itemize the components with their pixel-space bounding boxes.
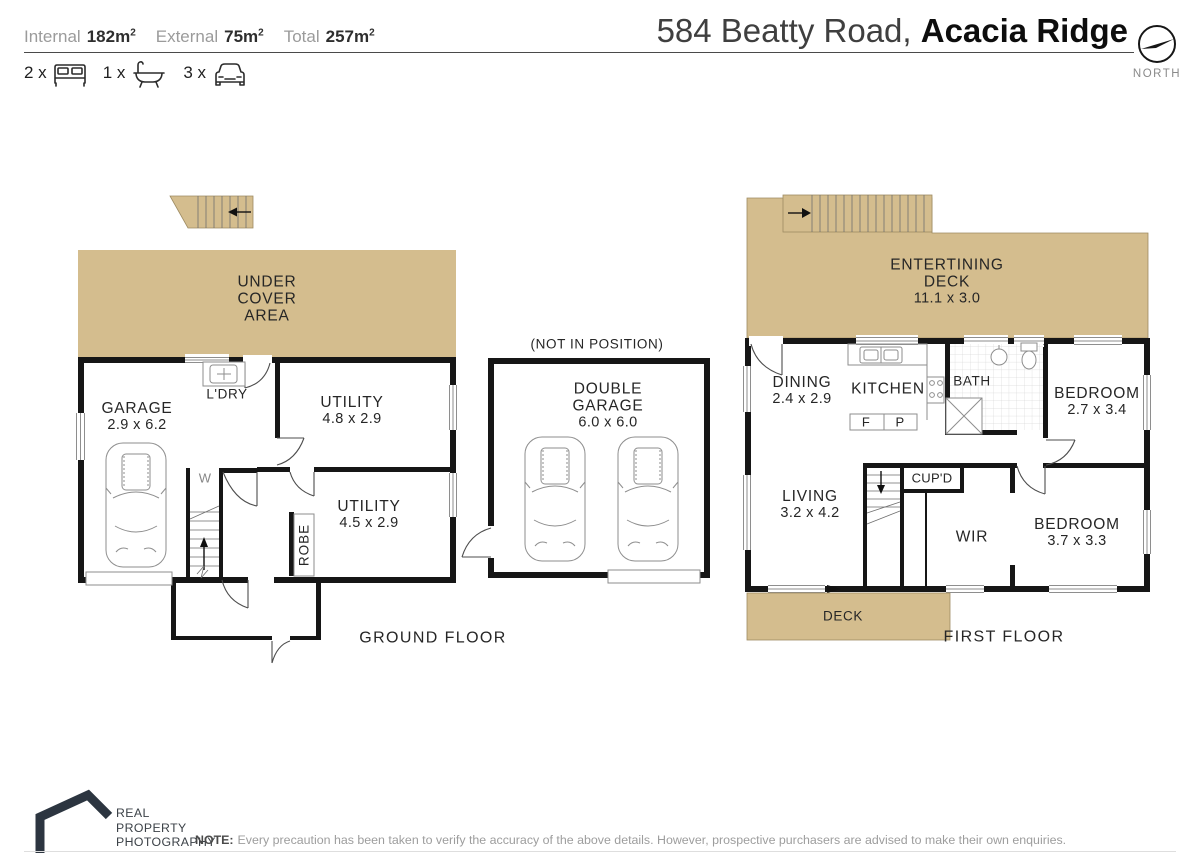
pantry-mark: P [896,414,905,431]
floorplan-page: Internal182m2 External75m2 Total257m2 2 … [0,0,1200,856]
feature-counts: 2 x 1 x 3 x [24,58,248,88]
room-label-bedroom-bottom: BEDROOM 3.7 x 3.3 [1034,516,1120,550]
north-label: NORTH [1133,68,1181,80]
room-label-robe: ROBE [296,524,313,566]
fridge-mark: F [862,414,870,431]
double-garage-car-right-icon [618,437,678,561]
stat-external: External75m2 [156,27,264,47]
room-label-wir: WIR [956,529,989,546]
footer-divider [24,851,1176,852]
room-label-cupboard: CUP'D [912,470,953,487]
header-divider [24,52,1134,53]
room-label-dining: DINING 2.4 x 2.9 [772,374,831,408]
room-label-double-garage: DOUBLE GARAGE 6.0 x 6.0 [572,381,643,432]
room-label-deck: DECK [823,608,863,625]
room-label-living: LIVING 3.2 x 4.2 [780,488,839,522]
under-cover-area-label: UNDER COVER AREA [237,274,296,325]
ground-floor-internal-stairs [190,506,219,578]
entertaining-deck-label: ENTERTINING DECK 11.1 x 3.0 [890,257,1004,308]
first-floor-internal-stairs [867,471,900,524]
room-label-utility-top: UTILITY 4.8 x 2.9 [320,394,383,428]
disclaimer-note: NOTE:Every precaution has been taken to … [195,833,1066,847]
compass-icon [1139,26,1175,62]
rpp-logo-icon [40,795,109,853]
stat-internal: Internal182m2 [24,27,136,47]
room-label-kitchen: KITCHEN [851,381,925,398]
car-icon [212,58,248,88]
ground-floor-doors [222,363,314,663]
stat-total: Total257m2 [284,27,375,47]
car-count: 3 x [183,58,248,88]
room-label-laundry: L'DRY [206,386,247,403]
page-title: 584 Beatty Road, Acacia Ridge [657,12,1128,50]
double-garage-car-left-icon [525,437,585,561]
room-label-bath: BATH [953,373,990,390]
bed-icon [53,59,87,87]
not-in-position-label: (NOT IN POSITION) [531,336,664,353]
stair-w-mark: W [199,470,212,487]
ground-floor-external-stairs [170,196,253,228]
room-label-garage: GARAGE 2.9 x 6.2 [101,400,172,434]
ground-floor-label: GROUND FLOOR [359,630,506,647]
laundry-tub-icon [203,362,245,386]
bathroom-count: 1 x [103,58,168,88]
garage-car-icon [106,443,166,567]
room-label-bedroom-top: BEDROOM 2.7 x 3.4 [1054,385,1140,419]
bedroom-count: 2 x [24,59,87,87]
room-label-utility-bottom: UTILITY 4.5 x 2.9 [337,498,400,532]
first-floor-external-stairs [783,195,932,232]
area-stats: Internal182m2 External75m2 Total257m2 [24,27,375,47]
bath-icon [131,58,167,88]
toilet-icon [1021,343,1037,351]
basin-icon [991,349,1007,365]
first-floor-label: FIRST FLOOR [944,629,1065,646]
